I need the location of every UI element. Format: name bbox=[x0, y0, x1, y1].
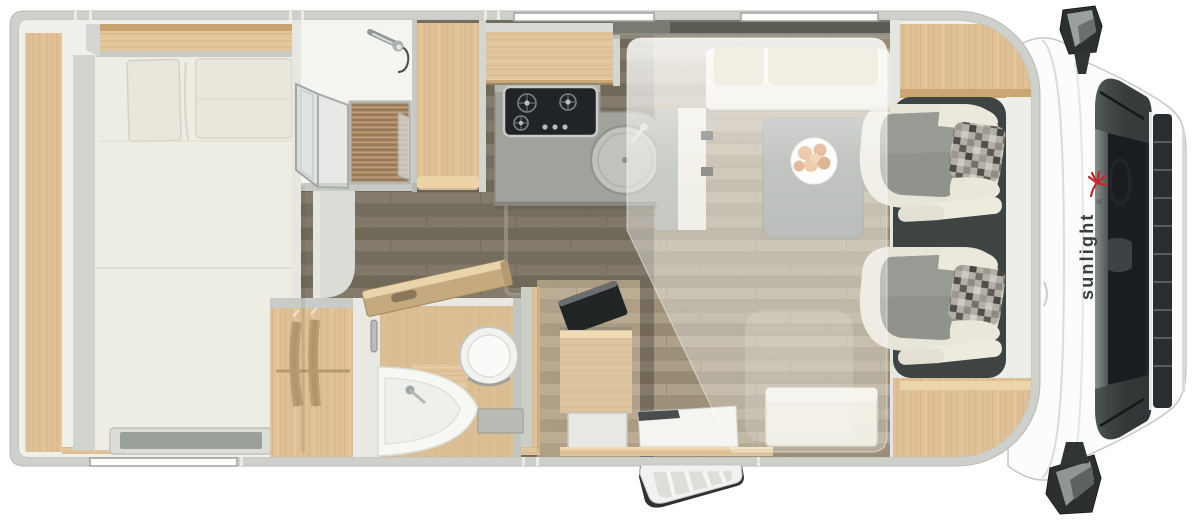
svg-text:®: ® bbox=[1096, 198, 1104, 204]
svg-text:sunlight: sunlight bbox=[1077, 212, 1097, 300]
